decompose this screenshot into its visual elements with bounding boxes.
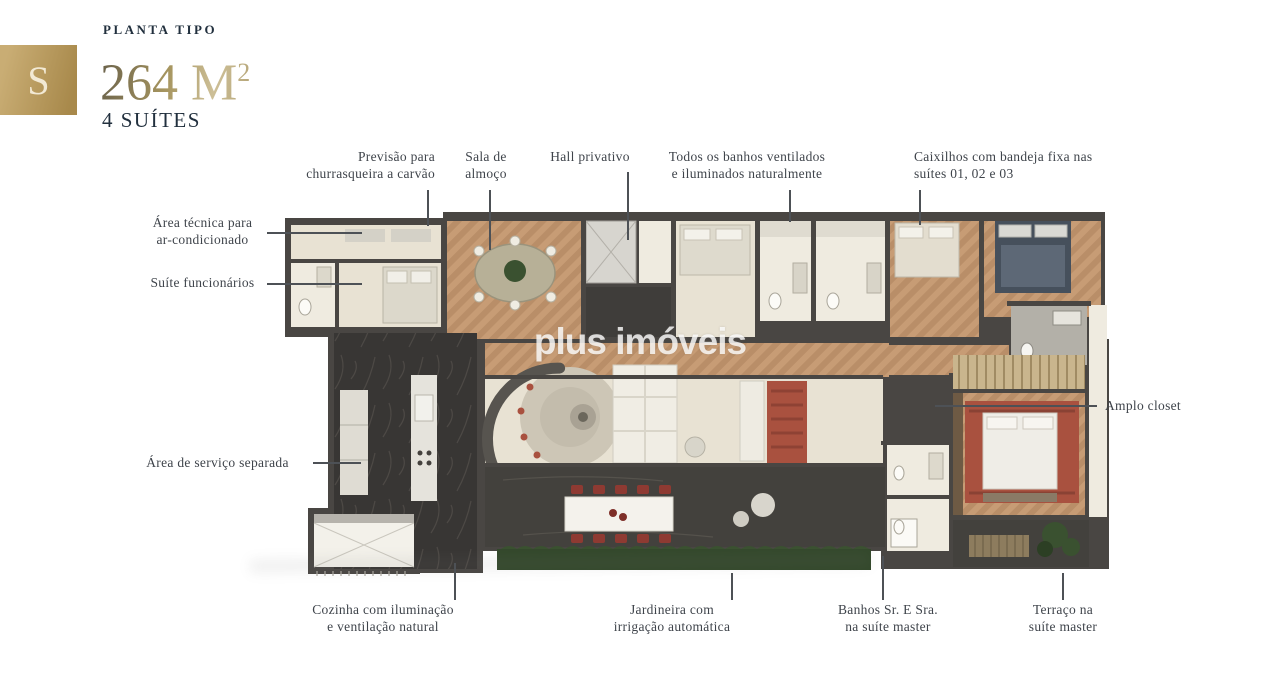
leader-suite-funcionarios (267, 283, 362, 285)
plan-type-label: PLANTA TIPO (103, 22, 217, 38)
leader-churrasqueira (427, 190, 429, 226)
callout-cozinha: Cozinha com iluminação e ventilação natu… (288, 601, 478, 635)
brand-badge-letter: S (27, 57, 49, 104)
terrace-gourmet (485, 467, 885, 547)
callout-area-tecnica: Área técnica para ar-condicionado (110, 214, 295, 248)
room-suite-02 (889, 221, 979, 337)
callout-churrasqueira: Previsão para churrasqueira a carvão (255, 148, 435, 182)
plan-area-value: 264 M (100, 54, 237, 111)
floorplan-drawing (283, 205, 1128, 595)
leader-cozinha (454, 563, 456, 600)
room-banho-2 (815, 221, 885, 321)
callout-banhos-ventilados: Todos os banhos ventilados e iluminados … (641, 148, 853, 182)
plan-area-superscript: 2 (237, 58, 250, 87)
leader-sala-almoco (489, 190, 491, 250)
leader-area-servico (313, 462, 361, 464)
room-banho-1 (759, 221, 811, 321)
leader-terraco-master (1062, 573, 1064, 600)
leader-hall-privativo (627, 172, 629, 240)
callout-area-servico: Área de serviço separada (120, 454, 315, 471)
callout-caixilhos: Caixilhos com bandeja fixa nas suítes 01… (914, 148, 1139, 182)
leader-jardineira (731, 573, 733, 600)
callout-jardineira: Jardineira com irrigação automática (577, 601, 767, 635)
room-suite-master (953, 355, 1085, 515)
leader-caixilhos (919, 190, 921, 225)
callout-amplo-closet: Amplo closet (1105, 397, 1235, 414)
callout-sala-almoco: Sala de almoço (436, 148, 536, 182)
leader-banhos-master (882, 556, 884, 600)
room-hall-privativo (586, 221, 672, 337)
brand-badge: S (0, 45, 77, 115)
watermark: plus imóveis (534, 321, 746, 363)
plan-suites-subtitle: 4 SUÍTES (102, 108, 201, 133)
leader-banhos-ventilados (789, 190, 791, 222)
floorplan-page: { "header": { "badge_letter": "S", "eyeb… (0, 0, 1280, 686)
callout-hall-privativo: Hall privativo (535, 148, 645, 165)
room-suite-funcionarios (291, 263, 441, 327)
plan-area-title: 264 M2 (100, 44, 250, 112)
room-suite-03 (675, 221, 755, 337)
callout-banhos-master: Banhos Sr. E Sra. na suíte master (793, 601, 983, 635)
room-area-tecnica (291, 225, 441, 259)
callout-terraco-master: Terraço na suíte master (968, 601, 1158, 635)
terrace-master (949, 519, 1089, 567)
leader-amplo-closet (935, 405, 1097, 407)
leader-area-tecnica (267, 232, 362, 234)
room-banhos-master (887, 445, 949, 551)
